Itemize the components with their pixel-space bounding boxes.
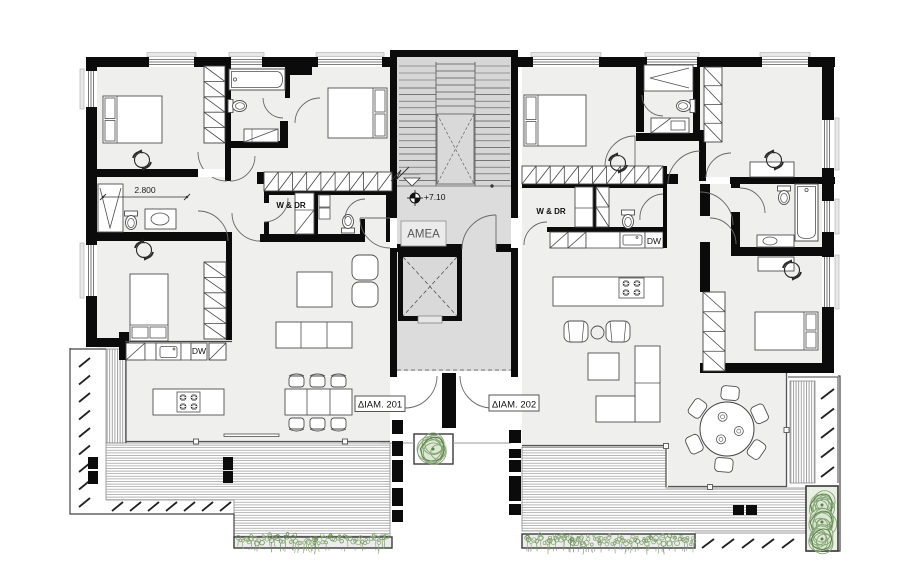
svg-text:W & DR: W & DR: [536, 207, 566, 216]
svg-text:W & DR: W & DR: [276, 201, 306, 210]
svg-text:DW: DW: [192, 346, 206, 356]
svg-text:DW: DW: [647, 236, 661, 246]
svg-text:2.800: 2.800: [134, 185, 156, 195]
svg-text:AMEA: AMEA: [407, 229, 440, 241]
svg-text:ΔΙΑΜ. 202: ΔΙΑΜ. 202: [492, 400, 536, 411]
svg-text:ΔΙΑΜ. 201: ΔΙΑΜ. 201: [358, 400, 402, 411]
svg-text:+7.10: +7.10: [424, 192, 446, 202]
